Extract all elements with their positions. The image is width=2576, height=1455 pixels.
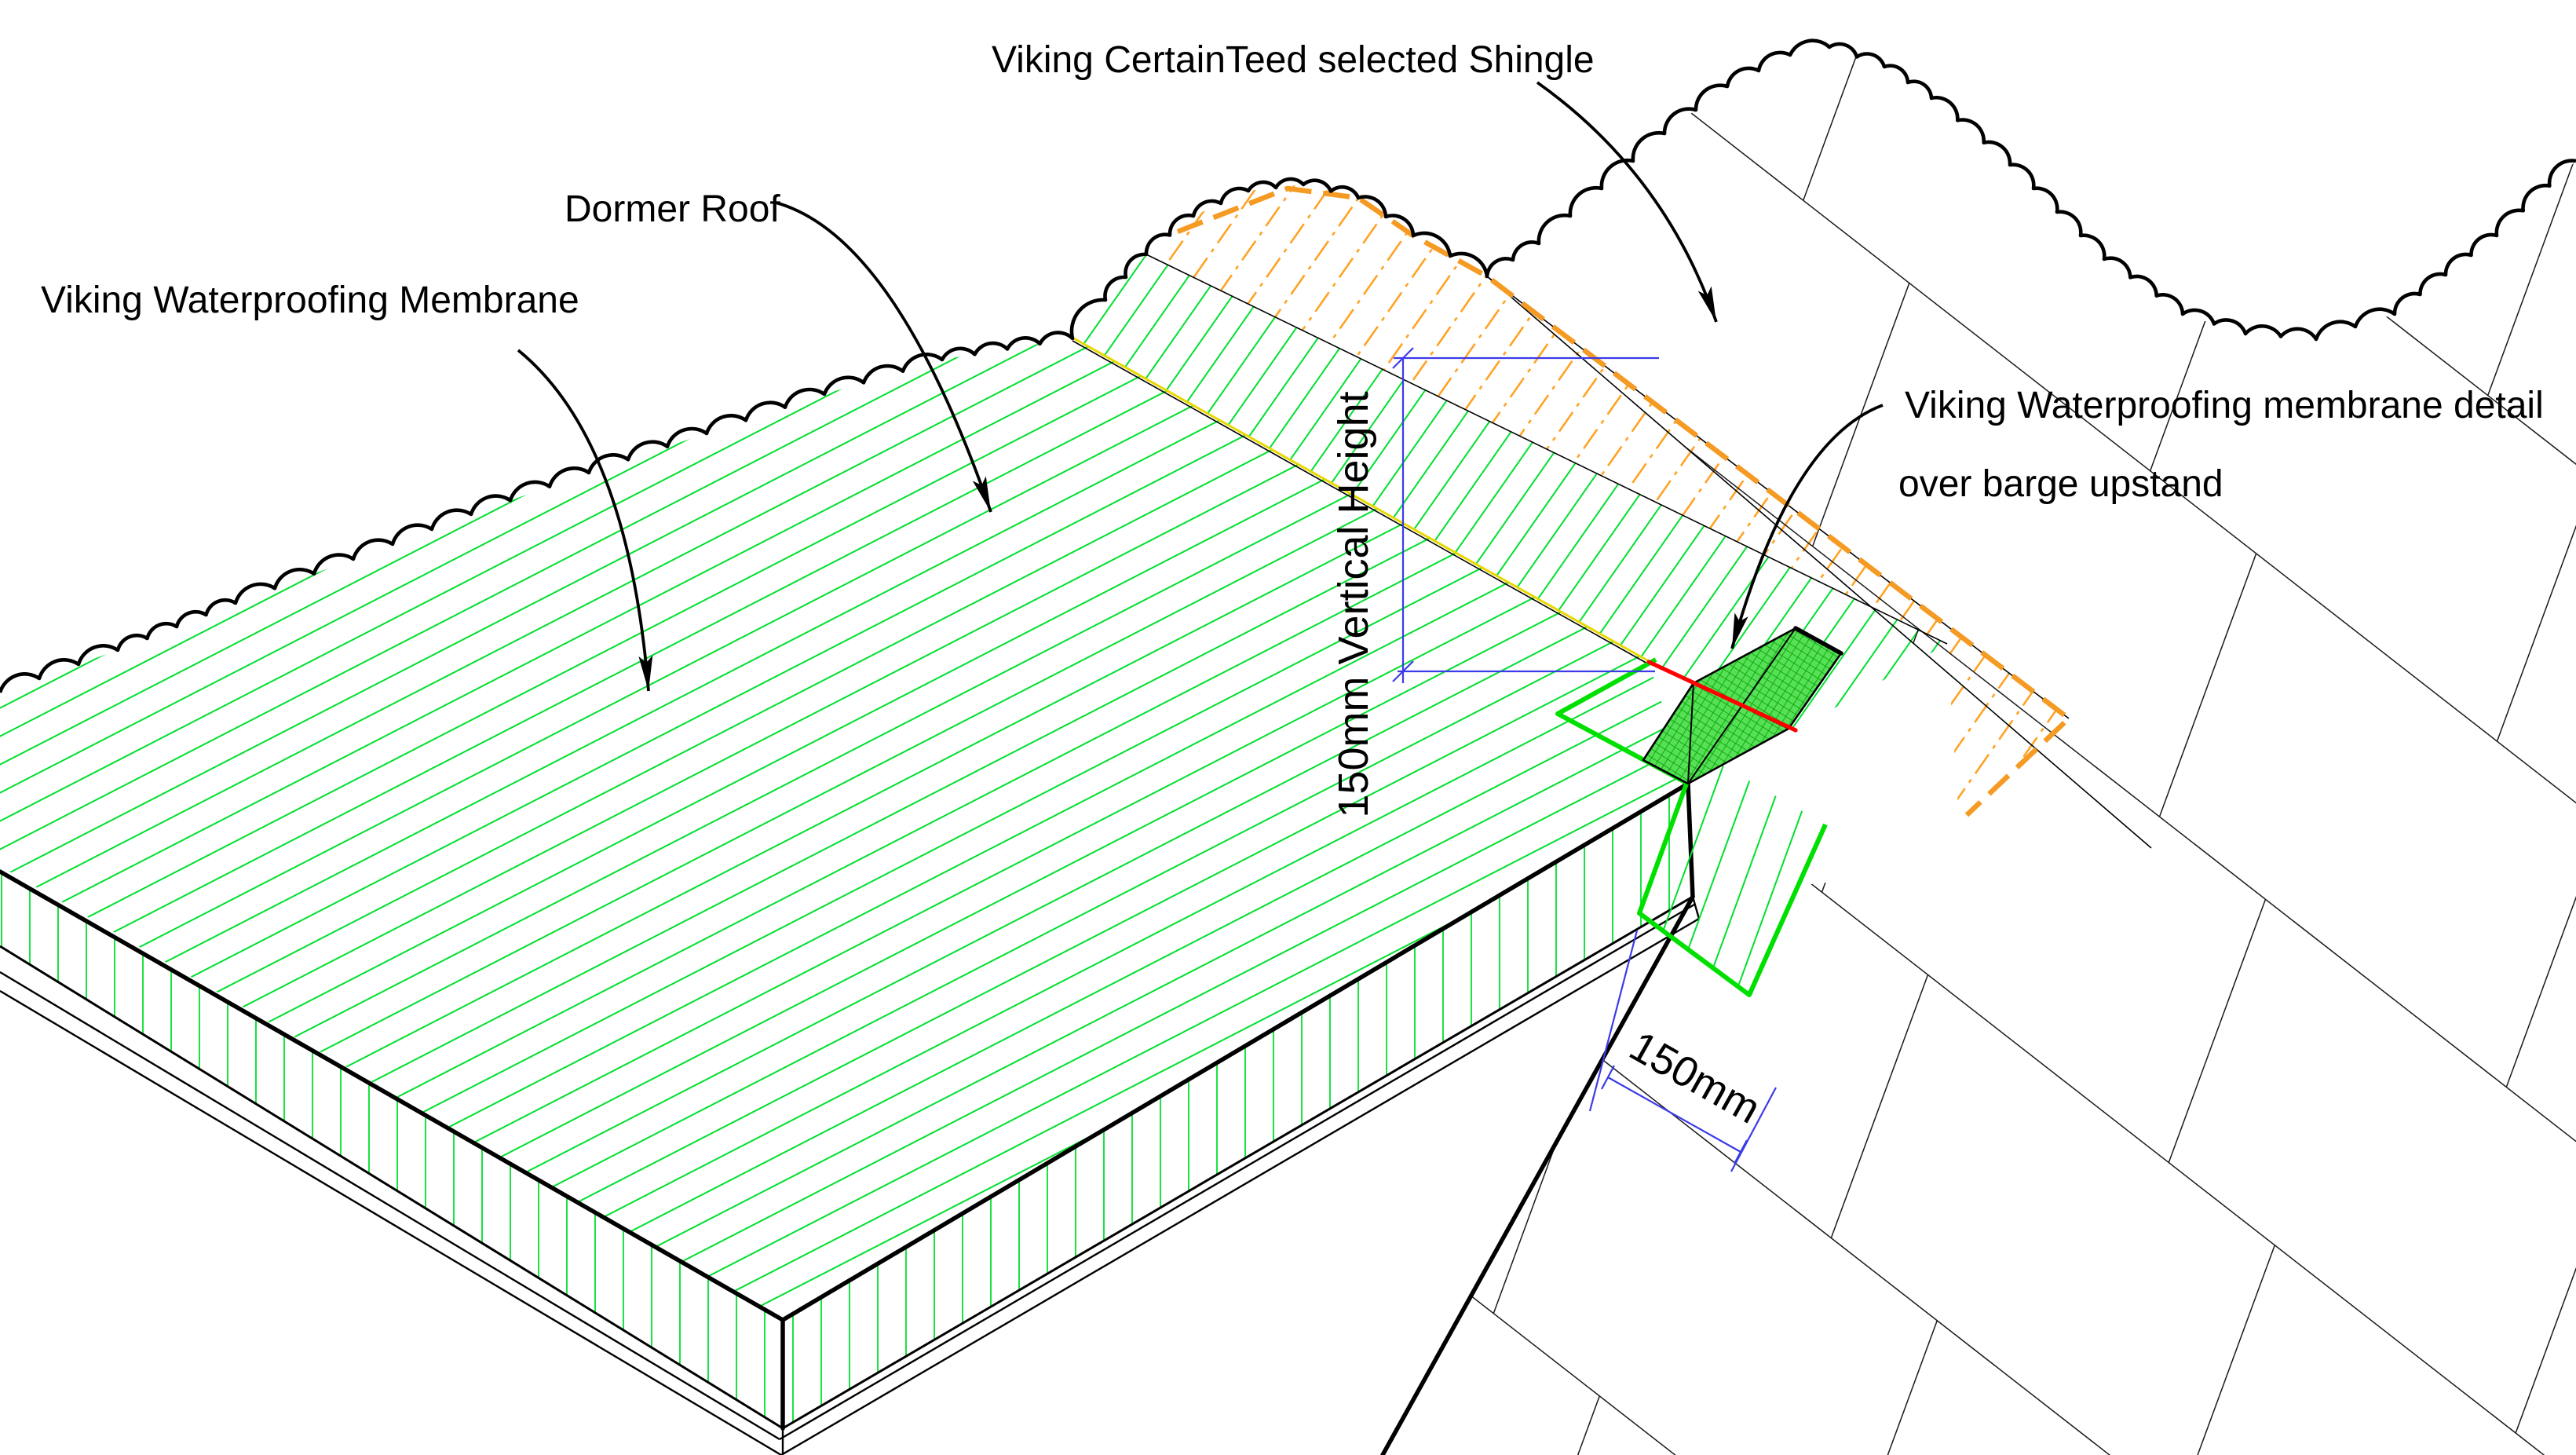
shingle-line xyxy=(1503,1396,1599,1455)
shingle-line xyxy=(2141,0,2238,125)
shingle-line xyxy=(1831,974,1927,1237)
shingle-line xyxy=(444,0,540,156)
shingle-line xyxy=(1493,1050,1590,1313)
shingle-line xyxy=(2506,824,2576,1087)
shingle-line xyxy=(2497,478,2576,741)
barge-overlap-text: 150mm xyxy=(1622,1022,1768,1133)
shingle-line xyxy=(781,0,878,81)
shingle-line xyxy=(2150,207,2247,470)
vertical-height-text: 150mm Vertical Height xyxy=(1330,391,1377,817)
shingle-line xyxy=(2178,1245,2275,1455)
shingle-line xyxy=(453,239,550,502)
shingle-line xyxy=(480,1277,577,1455)
drawing-stage: 150mm Vertical Height 150mm Viking Water… xyxy=(0,0,2576,1455)
label-shingle: Viking CertainTeed selected Shingle xyxy=(992,39,1595,81)
shingle-line xyxy=(1803,0,1900,200)
shingle-line xyxy=(1119,0,1215,5)
label-detail-line1: Viking Waterproofing membrane detail xyxy=(1905,385,2544,426)
shingle-line xyxy=(2479,0,2575,49)
shingle-line xyxy=(2160,554,2256,817)
label-dormer-roof: Dormer Roof xyxy=(565,188,780,230)
shingle-line xyxy=(2516,1170,2576,1433)
shingle-line xyxy=(106,0,203,232)
cad-drawing: 150mm Vertical Height 150mm Viking Water… xyxy=(0,0,2576,1455)
label-detail-line2: over barge upstand xyxy=(1898,463,2223,505)
shingle-line xyxy=(1840,1321,1937,1455)
shingle-line xyxy=(115,314,212,577)
label-membrane: Viking Waterproofing Membrane xyxy=(41,280,579,321)
shingle-line xyxy=(2169,899,2265,1162)
leader-shingle xyxy=(1537,82,1716,322)
shingle-line xyxy=(2488,132,2576,395)
